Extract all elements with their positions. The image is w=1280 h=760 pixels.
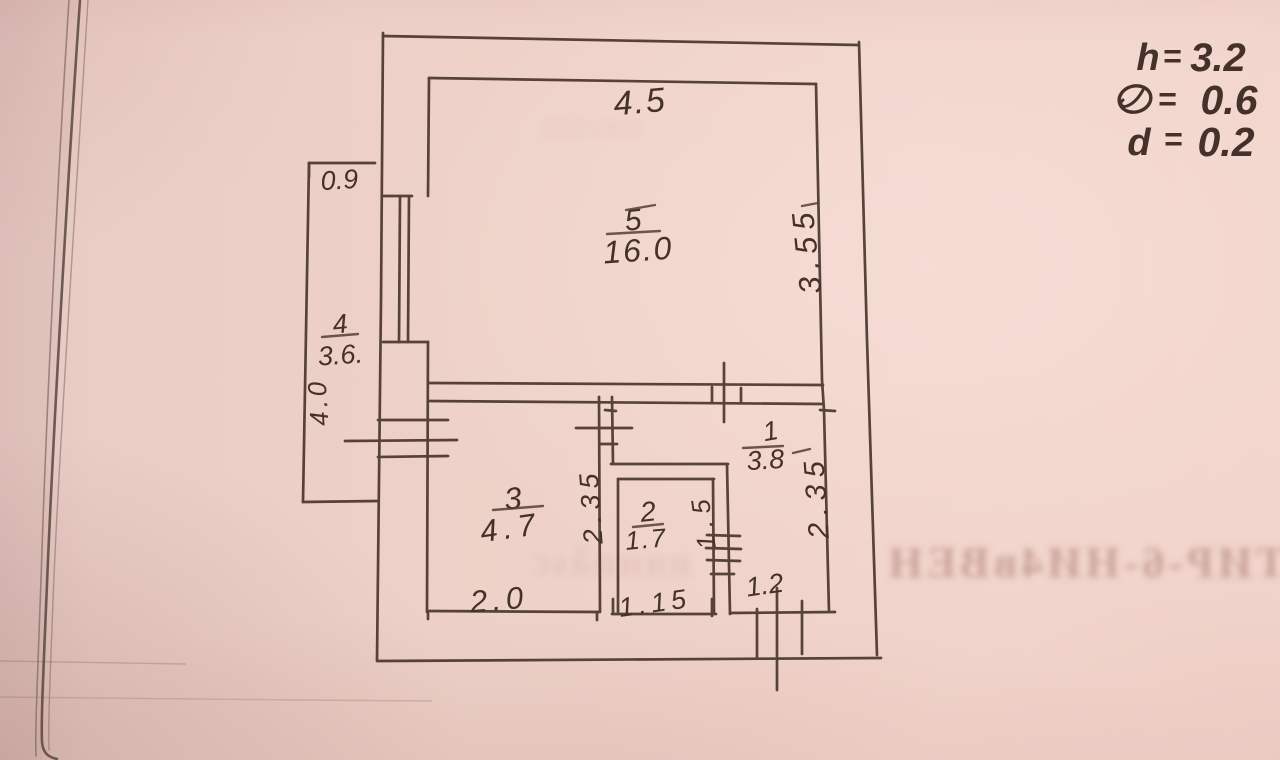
svg-text:d: d <box>1127 122 1151 164</box>
svg-text:1.2: 1.2 <box>744 568 785 603</box>
svg-text:3.55: 3.55 <box>784 204 828 296</box>
svg-text:4.5: 4.5 <box>612 81 668 123</box>
svg-text:0.2: 0.2 <box>1198 119 1255 165</box>
svg-text:3.6.: 3.6. <box>317 338 364 371</box>
svg-text:=: = <box>1164 121 1183 157</box>
svg-text:0.9: 0.9 <box>320 164 360 197</box>
svg-text:1.15: 1.15 <box>617 583 693 623</box>
svg-text:ТИР-6-НИ4вВЕН: ТИР-6-НИ4вВЕН <box>885 538 1280 587</box>
svg-text:3.2: 3.2 <box>1190 36 1246 80</box>
svg-text:0.6: 0.6 <box>1201 77 1259 123</box>
svg-text:1.7: 1.7 <box>624 522 669 556</box>
svg-text:4.0: 4.0 <box>301 377 334 427</box>
svg-text:=: = <box>1163 38 1182 74</box>
svg-text:2.35: 2.35 <box>573 467 608 546</box>
svg-text:2.0: 2.0 <box>468 580 530 620</box>
svg-text:2.35: 2.35 <box>798 453 836 540</box>
svg-text:3.8: 3.8 <box>746 444 786 477</box>
svg-text:16.0: 16.0 <box>602 230 675 271</box>
svg-text:1: 1 <box>760 415 780 447</box>
svg-text:=: = <box>1158 81 1177 117</box>
svg-text:h: h <box>1136 37 1159 79</box>
